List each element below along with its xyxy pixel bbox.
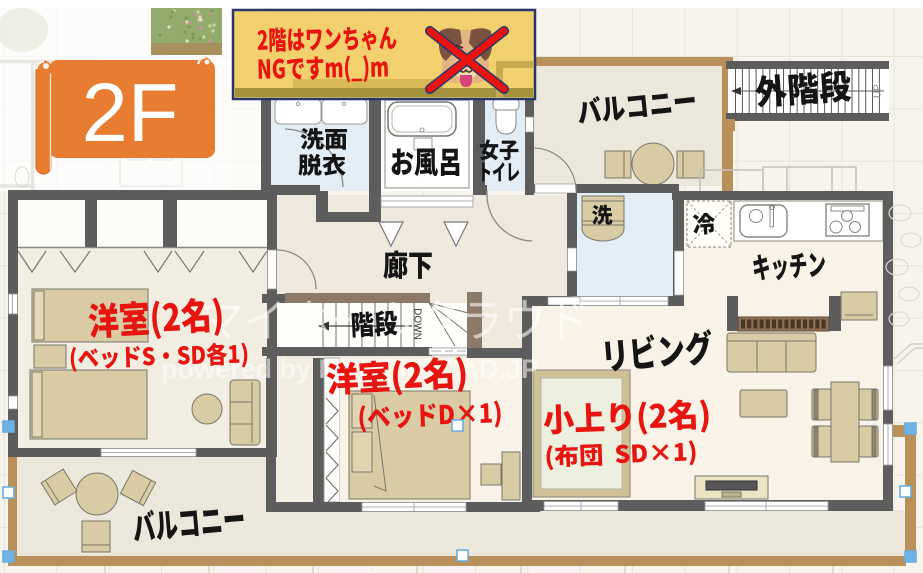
svg-text:2F: 2F: [82, 66, 179, 159]
svg-text:UP: UP: [873, 84, 884, 98]
